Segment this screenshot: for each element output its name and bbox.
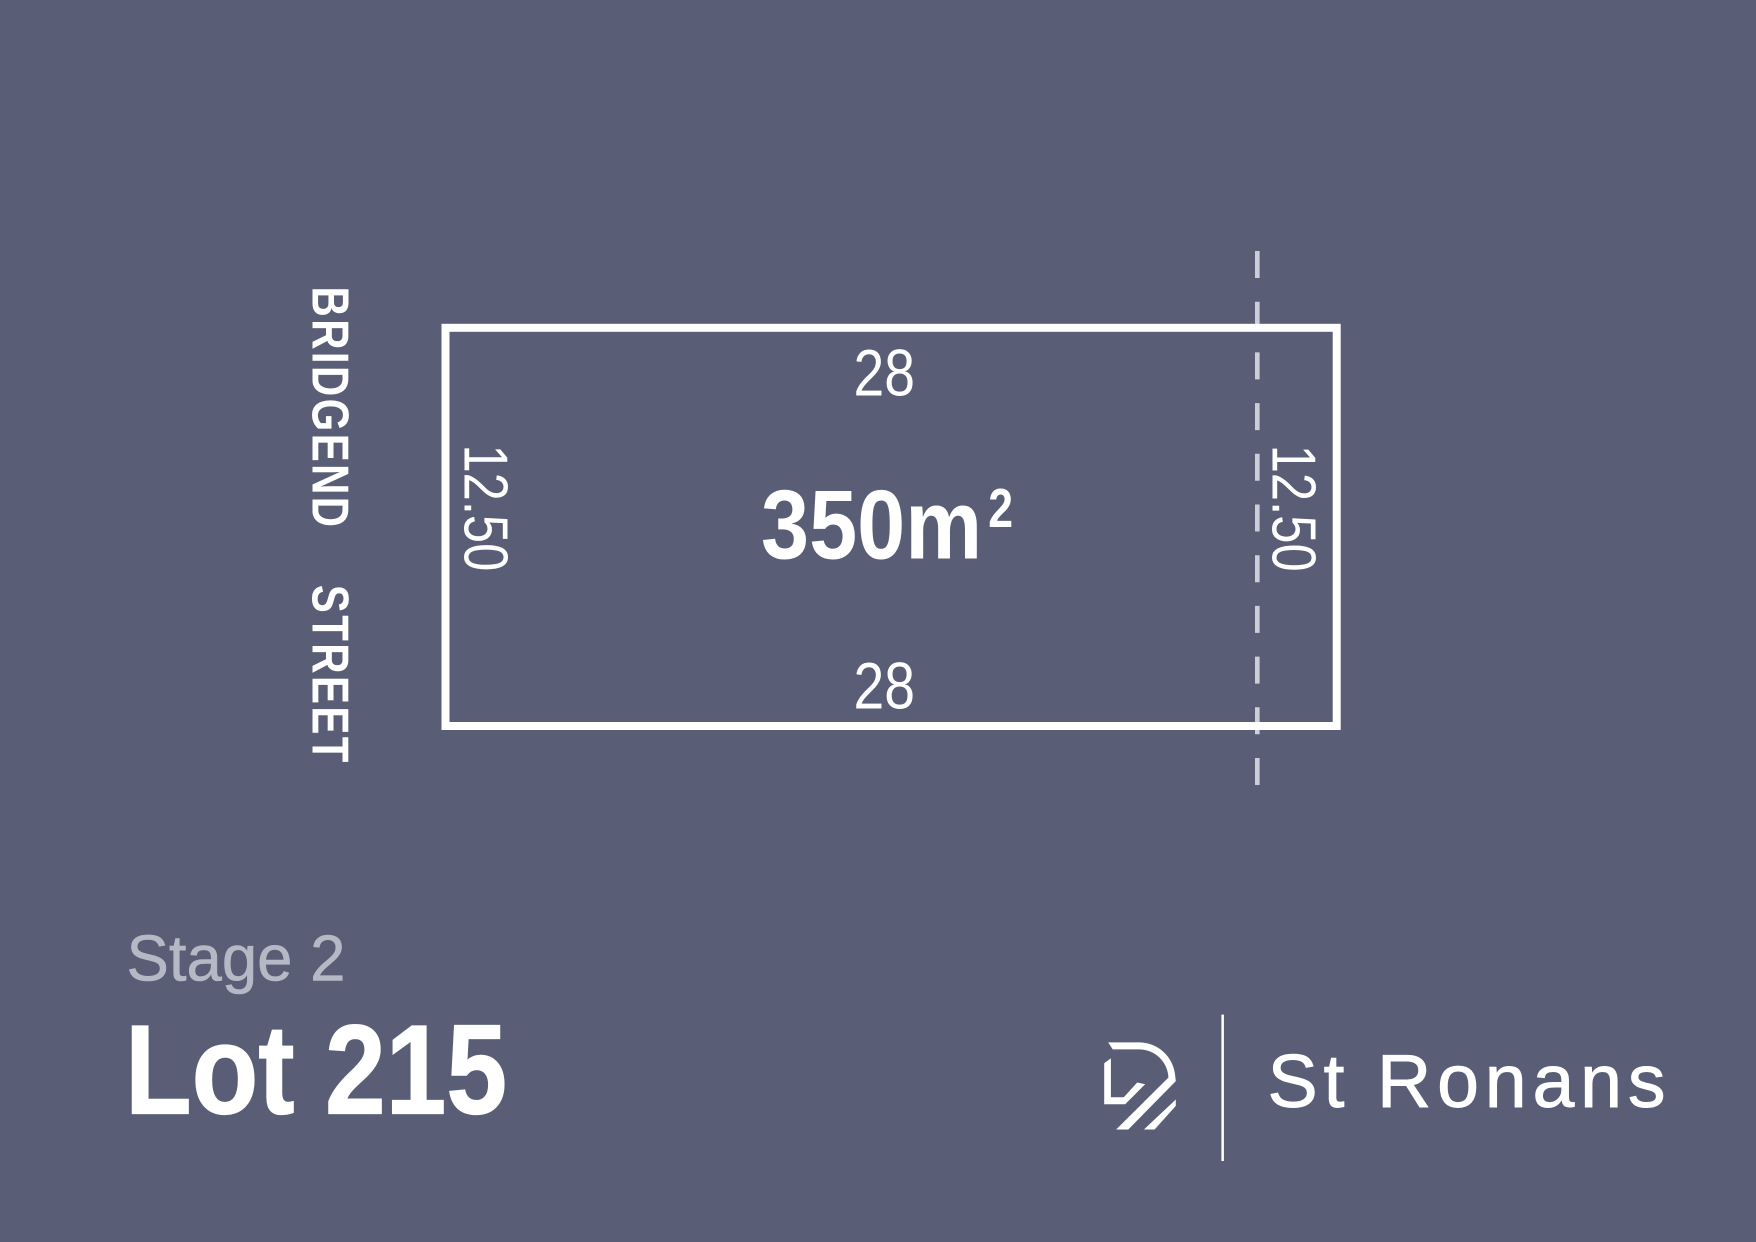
- svg-text:STREET: STREET: [301, 585, 359, 765]
- svg-text:12.50: 12.50: [1259, 445, 1328, 572]
- svg-text:350m: 350m: [761, 470, 982, 580]
- svg-text:2: 2: [988, 477, 1013, 539]
- svg-text:Lot 215: Lot 215: [125, 1000, 507, 1142]
- svg-text:St Ronans: St Ronans: [1268, 1039, 1666, 1123]
- svg-text:28: 28: [854, 337, 916, 411]
- svg-text:28: 28: [854, 650, 916, 724]
- svg-text:Stage 2: Stage 2: [127, 921, 346, 994]
- svg-text:12.50: 12.50: [451, 445, 520, 572]
- svg-text:BRIDGEND: BRIDGEND: [301, 287, 359, 530]
